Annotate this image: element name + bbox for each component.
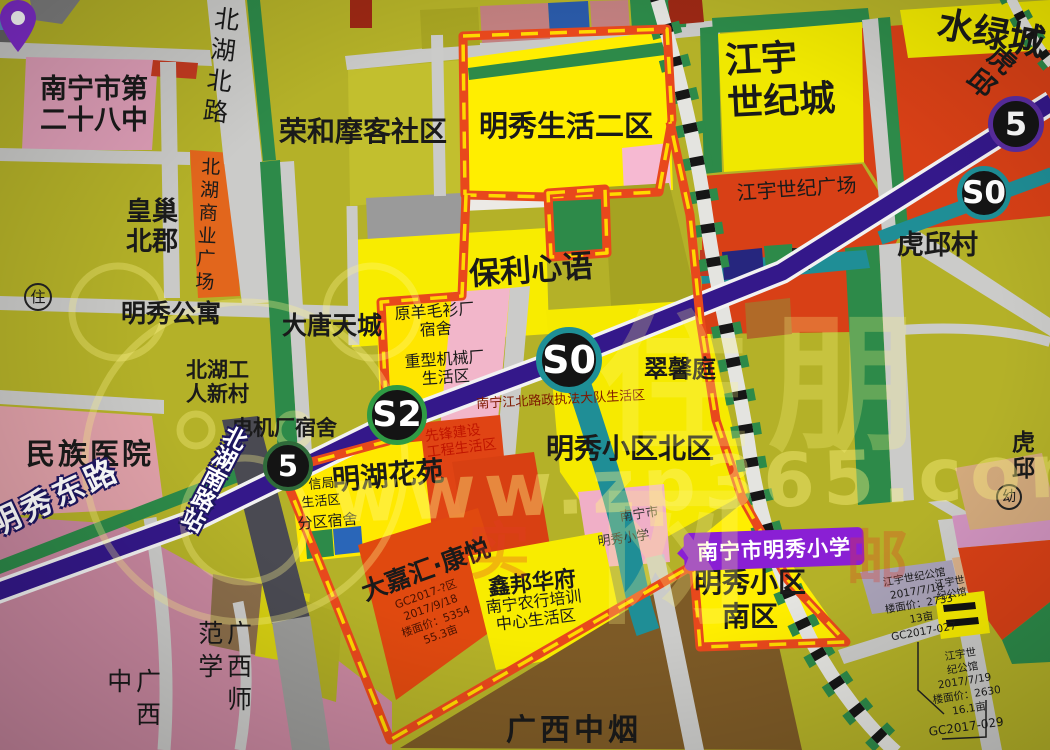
label-heavy-machinery: 重型机械厂 生活区 (396, 347, 494, 390)
label-gx-normal-university: 广西师范学 (194, 620, 252, 750)
watermark-site-name: 住朋网 (598, 300, 1050, 645)
school-pin-icon[interactable] (0, 0, 36, 52)
label-ronghe-moke: 荣和摩客社区 (279, 116, 447, 148)
watermark-red-char-2: 邮 (846, 524, 908, 595)
label-mingxiu-apartment: 明秀公寓 (121, 300, 221, 329)
label-jiangyu-gongguan-parcel3: 江宇世 纪公馆 2017/7/19 楼面价：2630 16.1亩 (920, 642, 1010, 722)
station-badge-s0-center[interactable]: S0 (536, 327, 602, 393)
label-gx-zhongyan: 广西中烟 (506, 714, 642, 749)
label-dianjichang-dorm: 电机厂宿舍 (232, 416, 337, 440)
label-datang-tiancheng: 大唐天城 (282, 312, 382, 341)
label-gx-zhong: 广西中 (103, 668, 161, 750)
station-badge-s0-ne[interactable]: S0 (957, 166, 1011, 220)
label-huqiu-village: 虎邱村 (897, 230, 978, 261)
station-badge-line5-west[interactable]: 5 (263, 441, 313, 491)
map-canvas: 南宁市明秀小学 南宁市第 二十八中北湖北路荣和摩客社区明秀生活二区江宇 世纪城水… (0, 0, 1050, 750)
label-beihu-workers-village: 北湖工 人新村 (186, 358, 249, 406)
icon-zhu-circled: 住 (24, 283, 52, 311)
label-mingxiu-life2: 明秀生活二区 (479, 110, 653, 143)
label-jiangyu-century-city: 江宇 世纪城 (724, 34, 836, 126)
station-badge-s2[interactable]: S2 (367, 385, 427, 445)
label-huangchao-beijun: 皇巢 北郡 (126, 198, 178, 258)
watermark-red-char-1: 实 (468, 516, 530, 587)
label-yangmaoshan-dorm: 原羊毛衫厂 宿舍 (386, 299, 484, 342)
station-badge-line5-ne[interactable]: 5 (988, 96, 1044, 152)
label-no28-middle-school: 南宁市第 二十八中 (40, 74, 148, 136)
